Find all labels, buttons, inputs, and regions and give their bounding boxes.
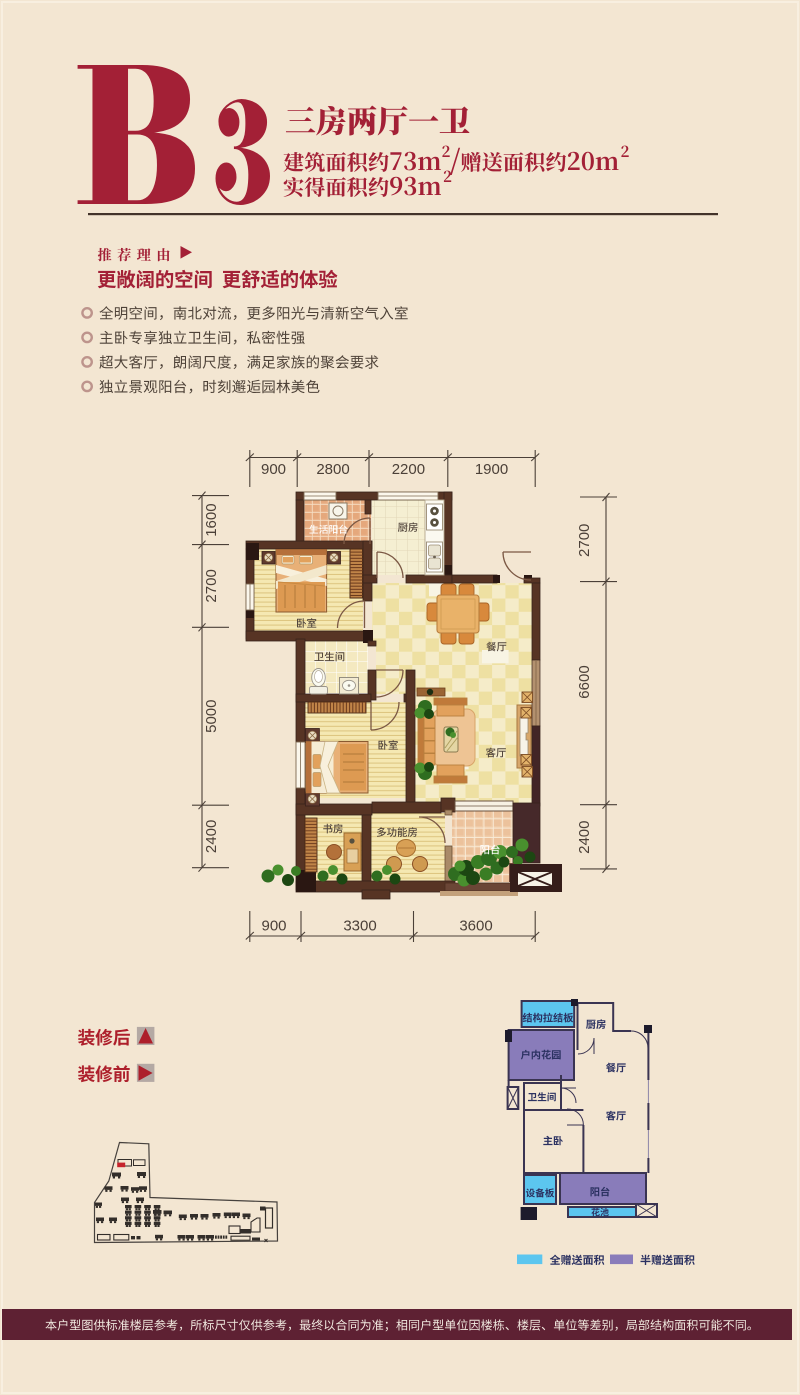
svg-text:6600: 6600 <box>576 665 593 698</box>
svg-text:3600: 3600 <box>459 918 492 935</box>
svg-text:2700: 2700 <box>203 569 220 602</box>
svg-text:2400: 2400 <box>203 820 220 853</box>
svg-text:2400: 2400 <box>576 821 593 854</box>
svg-text:2800: 2800 <box>316 461 349 478</box>
svg-text:3300: 3300 <box>343 918 376 935</box>
svg-text:900: 900 <box>261 918 286 935</box>
svg-text:2200: 2200 <box>392 461 425 478</box>
svg-text:1600: 1600 <box>203 503 220 536</box>
svg-text:5000: 5000 <box>203 700 220 733</box>
svg-text:1900: 1900 <box>475 461 508 478</box>
svg-text:900: 900 <box>261 461 286 478</box>
svg-text:2700: 2700 <box>576 524 593 557</box>
